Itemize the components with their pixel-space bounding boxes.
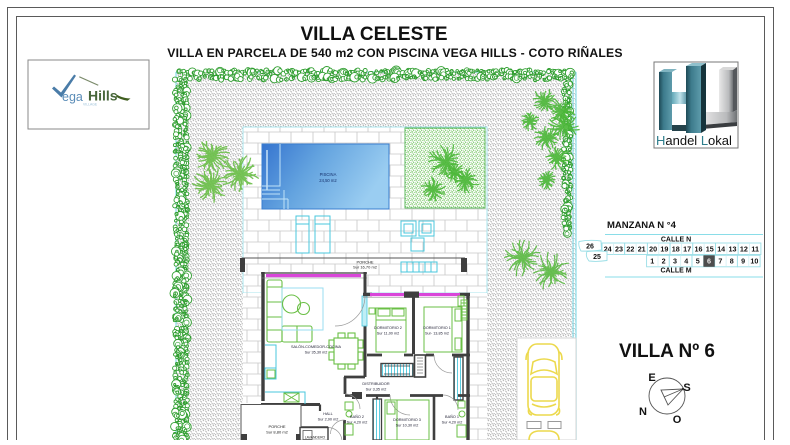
svg-text:20: 20 — [649, 244, 657, 253]
svg-text:2: 2 — [662, 257, 666, 266]
svg-text:15: 15 — [706, 244, 714, 253]
svg-text:VILLA EN PARCELA DE 540 m2 CON: VILLA EN PARCELA DE 540 m2 CON PISCINA V… — [167, 45, 622, 60]
svg-text:10: 10 — [750, 257, 758, 266]
svg-text:25: 25 — [593, 254, 601, 261]
svg-text:26: 26 — [586, 244, 594, 251]
svg-text:18: 18 — [672, 244, 680, 253]
svg-text:4: 4 — [684, 257, 688, 266]
svg-text:CALLE M: CALLE M — [660, 268, 691, 275]
svg-text:Sur 3,35 m2: Sur 3,35 m2 — [366, 388, 387, 392]
svg-text:24,50 m2: 24,50 m2 — [319, 178, 337, 183]
svg-text:Sur 4,20 m2: Sur 4,20 m2 — [347, 421, 368, 425]
svg-text:23: 23 — [615, 244, 623, 253]
svg-text:5: 5 — [696, 257, 700, 266]
svg-text:ega: ega — [62, 90, 83, 104]
svg-text:7: 7 — [718, 257, 722, 266]
svg-text:21: 21 — [638, 244, 646, 253]
svg-text:MANZANA N °4: MANZANA N °4 — [607, 220, 677, 231]
svg-text:N: N — [639, 406, 647, 418]
svg-text:LAVANDERO: LAVANDERO — [305, 436, 326, 440]
svg-text:SALÓN-COMEDOR-COCINA: SALÓN-COMEDOR-COCINA — [291, 344, 341, 349]
svg-text:17: 17 — [683, 244, 691, 253]
svg-text:1: 1 — [650, 257, 654, 266]
svg-text:Handel Lokal: Handel Lokal — [656, 133, 732, 148]
svg-text:Sur 4,20 m2: Sur 4,20 m2 — [442, 421, 463, 425]
svg-text:Sur 2,90 m2: Sur 2,90 m2 — [318, 418, 339, 422]
svg-text:CALLE N: CALLE N — [661, 237, 691, 244]
svg-text:VILLA CELESTE: VILLA CELESTE — [300, 24, 447, 45]
svg-text:16: 16 — [695, 244, 703, 253]
svg-text:Sur 16,70 m2: Sur 16,70 m2 — [353, 265, 378, 270]
svg-text:19: 19 — [660, 244, 668, 253]
svg-text:DORMITORIO 2: DORMITORIO 2 — [374, 326, 402, 330]
svg-text:13: 13 — [729, 244, 737, 253]
svg-text:PISCINA: PISCINA — [320, 172, 337, 177]
svg-text:BAÑO 1: BAÑO 1 — [445, 414, 459, 419]
svg-text:11: 11 — [751, 244, 759, 253]
svg-text:DORMITORIO 1: DORMITORIO 1 — [423, 326, 451, 330]
svg-text:VILLA Nº 6: VILLA Nº 6 — [619, 341, 715, 362]
svg-text:Sur 10,30 m2: Sur 10,30 m2 — [396, 424, 419, 428]
svg-text:Sur- 13,85 m2: Sur- 13,85 m2 — [425, 332, 449, 336]
svg-text:Sur 11,00 m2: Sur 11,00 m2 — [377, 332, 400, 336]
svg-text:E: E — [648, 372, 655, 384]
svg-text:Hills: Hills — [88, 88, 118, 104]
svg-text:9: 9 — [741, 257, 745, 266]
svg-text:PORCHE: PORCHE — [268, 424, 285, 429]
svg-text:O: O — [673, 414, 682, 426]
svg-text:22: 22 — [626, 244, 634, 253]
svg-text:VILLAGE: VILLAGE — [83, 103, 98, 107]
svg-text:12: 12 — [740, 244, 748, 253]
svg-text:DISTRIBUIDOR: DISTRIBUIDOR — [362, 382, 389, 386]
svg-text:S: S — [683, 382, 690, 394]
svg-text:8: 8 — [730, 257, 734, 266]
svg-text:Sur 35,30 m2: Sur 35,30 m2 — [305, 351, 328, 355]
svg-text:HALL: HALL — [323, 412, 333, 416]
svg-text:BAÑO 2: BAÑO 2 — [350, 414, 364, 419]
svg-text:Sur 8,80 m2: Sur 8,80 m2 — [266, 430, 289, 435]
svg-text:6: 6 — [707, 257, 711, 266]
svg-text:DORMITORIO 3: DORMITORIO 3 — [393, 418, 421, 422]
svg-text:3: 3 — [673, 257, 677, 266]
svg-text:14: 14 — [717, 244, 725, 253]
